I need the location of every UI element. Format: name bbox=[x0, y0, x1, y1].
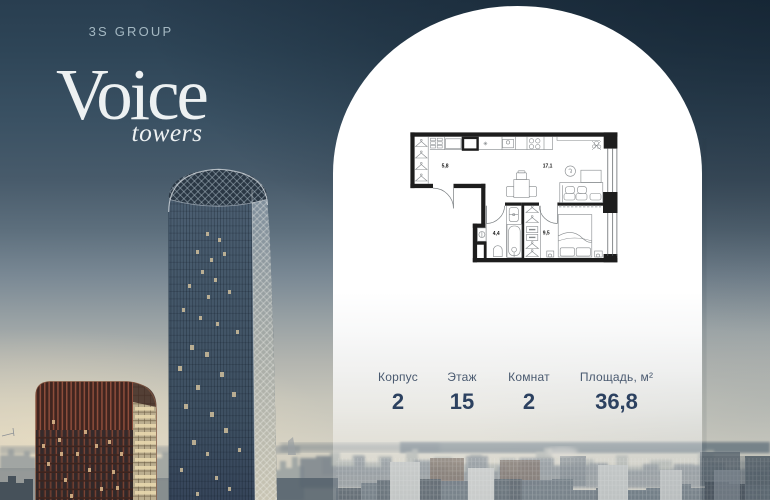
svg-text:9,5: 9,5 bbox=[543, 231, 550, 237]
svg-text:17,1: 17,1 bbox=[543, 163, 553, 169]
svg-text:5,8: 5,8 bbox=[442, 163, 449, 169]
svg-text:4,4: 4,4 bbox=[493, 231, 500, 237]
